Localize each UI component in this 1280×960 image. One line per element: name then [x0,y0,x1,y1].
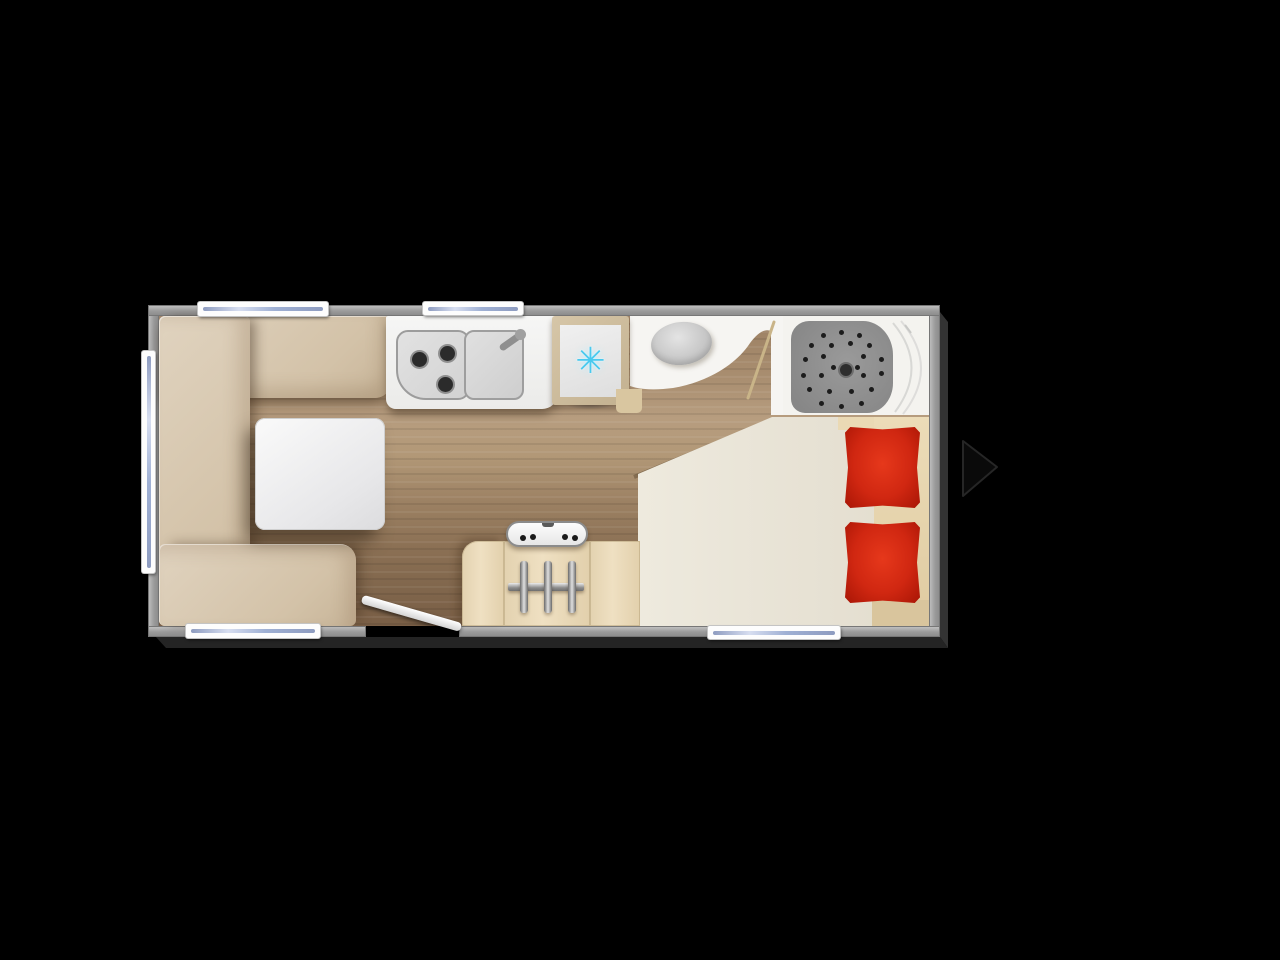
shower-dot [839,404,844,409]
cabinet-under-fridge [616,389,642,413]
red-pillow [845,522,920,603]
heater-grille-bar-vertical [520,561,528,613]
shower-dot [819,373,824,378]
heater-grille-bar-vertical [568,561,576,613]
dinette-table [255,418,385,530]
heater-panel-dot [520,535,526,541]
shower-dot [831,365,836,370]
shower-dot [809,343,814,348]
hob-burner [438,377,453,392]
hob-unit [396,330,470,400]
shower-dot [855,365,860,370]
heater-panel-dot [530,534,536,540]
window-glass [191,629,315,633]
heater-grille-bar-vertical [544,561,552,613]
heater-panel-dot [562,534,568,540]
wall-right [929,305,940,637]
shower-dot [829,343,834,348]
shower-dot [821,333,826,338]
bevel-right [940,312,948,648]
shower-dot [848,341,853,346]
caravan-floorplan: ✳ [0,0,1280,960]
shower-dot [859,401,864,406]
shower-dot [867,343,872,348]
faucet-knob [515,329,526,340]
shower-dot [821,354,826,359]
snowflake-icon: ✳ [560,325,621,397]
lounge-seat-bottom [159,544,356,626]
shower-dot [857,333,862,338]
shower-dot [839,330,844,335]
window-glass [428,307,518,311]
bottom-window-left [186,624,320,638]
shower-dot [879,357,884,362]
top-window-right [423,302,523,315]
wardrobe-cabinet-right [590,541,640,626]
shower-dot [803,357,808,362]
heater-control-unit [506,521,588,547]
wall-bottom-right-segment [459,626,940,637]
shower-dot [869,387,874,392]
shower-dot [879,371,884,376]
hob-burner [440,346,455,361]
snowflake-glyph: ✳ [575,341,605,382]
shower-tray [791,321,893,413]
shower-dot [861,354,866,359]
shower-dot [801,373,806,378]
shower-dot [827,389,832,394]
bottom-window-right [708,626,840,639]
window-glass [147,356,151,568]
top-window-left [198,302,328,316]
red-pillow [845,427,920,508]
shower-dot [819,401,824,406]
hob-burner [412,352,427,367]
shower-dot [849,389,854,394]
left-window [142,351,155,573]
shower-dot [861,373,866,378]
wardrobe-cabinet-left [462,541,504,626]
shower-dot [807,387,812,392]
heater-panel-dot [572,535,578,541]
shower-drain-icon [838,362,854,378]
window-glass [713,631,835,635]
window-glass [203,307,323,311]
heater-notch [542,523,554,527]
carousel-next-arrow[interactable] [963,441,997,496]
